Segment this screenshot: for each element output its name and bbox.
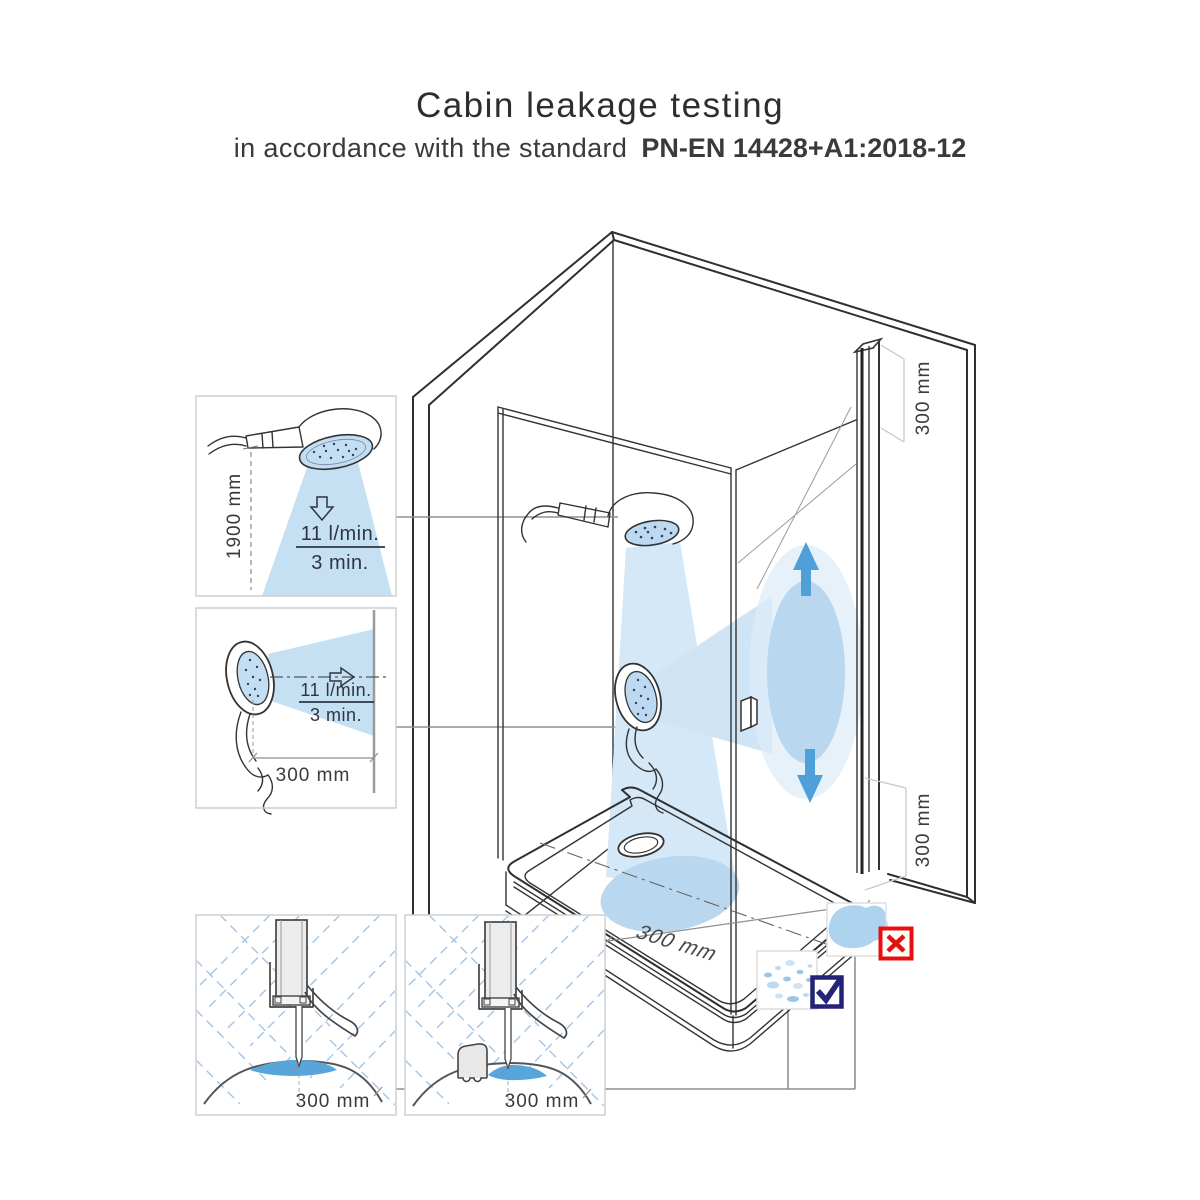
side-glass-top-edge: [498, 407, 731, 474]
hinge-profile: [855, 339, 881, 874]
overhead-height-label: 1900 mm: [224, 473, 245, 559]
shower-head-overhead: [522, 493, 694, 549]
x-icon: [881, 929, 912, 959]
door-top-dimension: 300 mm: [881, 345, 934, 442]
fail-indicator: [827, 903, 912, 959]
leakage-test-diagram: 300 mm 300 mm 300 mm: [0, 0, 1200, 1200]
door-spray-ellipse: [767, 581, 845, 763]
inset-horizontal-spray: 11 l/min. 3 min. 300 mm: [196, 608, 396, 814]
inset-seal-plain: 300 mm: [196, 915, 396, 1115]
side-glass-left-edge: [498, 407, 503, 860]
door-bottom-dimension: 300 mm: [865, 778, 934, 890]
door-handle: [741, 697, 757, 731]
side-distance-label: 300 mm: [276, 765, 351, 786]
seal-threshold-distance-label: 300 mm: [505, 1091, 580, 1112]
seal-plain-distance-label: 300 mm: [296, 1091, 371, 1112]
page: Cabin leakage testing in accordance with…: [0, 0, 1200, 1200]
top-gap-label: 300 mm: [913, 361, 934, 436]
bottom-gap-label: 300 mm: [913, 793, 934, 868]
threshold-block: [458, 1044, 487, 1078]
side-duration-label: 3 min.: [310, 705, 362, 725]
overhead-duration-label: 3 min.: [311, 552, 368, 574]
pass-indicator: [757, 951, 842, 1009]
overhead-flow-label: 11 l/min.: [301, 523, 380, 545]
inset-seal-threshold: 300 mm: [405, 915, 605, 1115]
check-icon: [813, 978, 842, 1007]
side-flow-label: 11 l/min.: [300, 680, 371, 700]
inset-overhead-spray: 1900 mm 11 l/min. 3 min.: [196, 396, 396, 596]
